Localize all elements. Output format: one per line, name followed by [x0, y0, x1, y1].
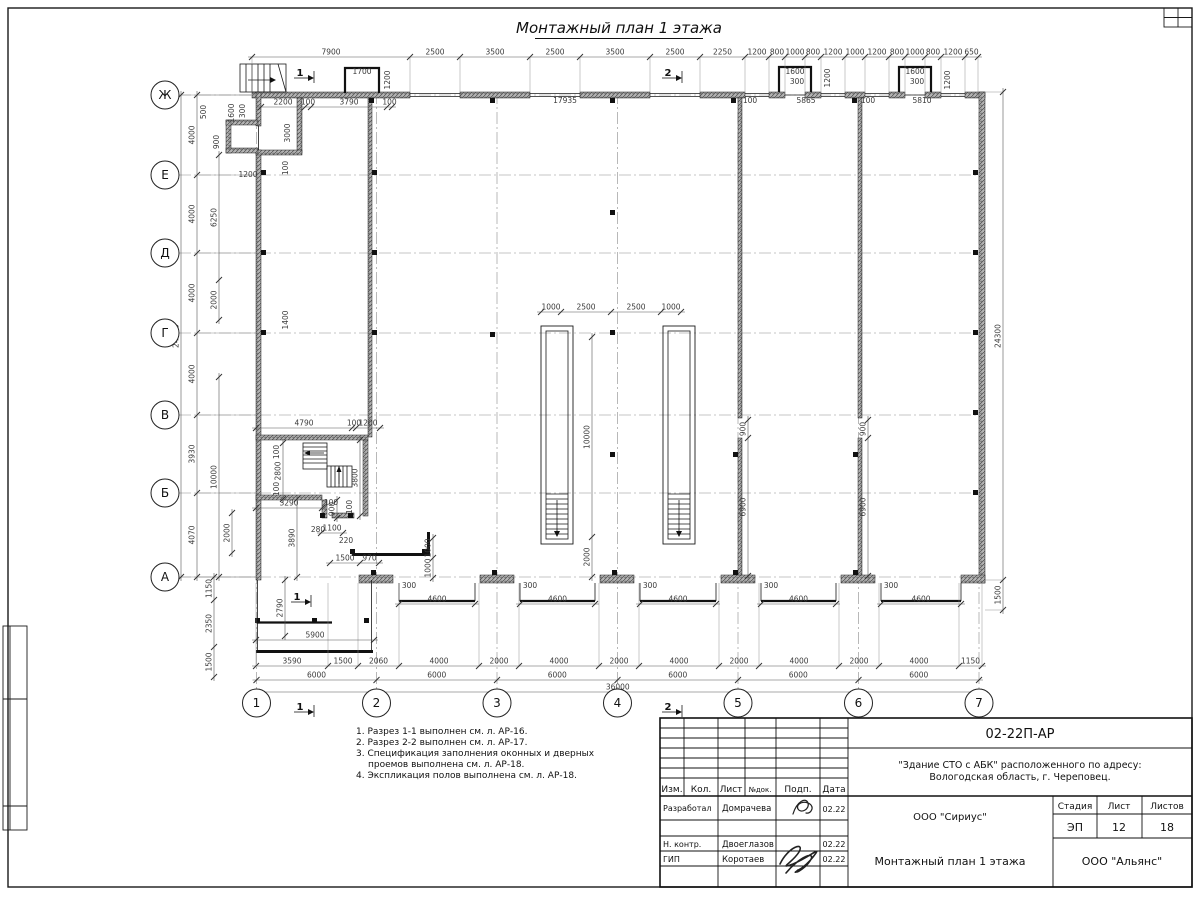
date-developer: 02.22	[823, 805, 846, 814]
dim-label: 300	[884, 581, 899, 590]
dim-label: 7900	[321, 48, 340, 57]
dim-label: 5900	[305, 631, 324, 640]
dim-label: 4000	[188, 125, 197, 144]
dim-label: 800	[806, 48, 821, 57]
dim-label: 4000	[669, 657, 688, 666]
section-mark-label: 2	[665, 68, 672, 79]
dim-label: 1600	[905, 67, 924, 76]
sheet-number: 12	[1112, 821, 1126, 834]
section-mark-label: 1	[297, 702, 304, 713]
annex-walls	[256, 532, 430, 652]
dim-label: 2000	[223, 523, 232, 542]
dim-label: 6000	[909, 671, 928, 680]
dim-label: 1200	[823, 48, 842, 57]
col-list: Лист	[720, 785, 743, 795]
dim-label: 1200	[747, 48, 766, 57]
axis-label: 3	[493, 696, 501, 710]
section-mark-label: 2	[665, 702, 672, 713]
col-ndok: №док.	[749, 786, 772, 794]
pit-right	[663, 326, 695, 544]
dim-label: 4790	[294, 419, 313, 428]
dim-label: 17935	[553, 96, 577, 105]
dim-label: 4600	[789, 595, 808, 604]
dim-label: 4000	[188, 283, 197, 302]
dim-label: 2200	[273, 98, 292, 107]
dim-label: 300	[764, 581, 779, 590]
col-kol: Кол.	[691, 785, 712, 795]
dim-label: 1200	[358, 419, 377, 428]
dim-label: 2800	[274, 461, 283, 480]
axis-label: Б	[161, 486, 169, 500]
axis-label: 1	[253, 696, 261, 710]
dim-label: 6000	[548, 671, 567, 680]
dim-label: 1200	[943, 48, 962, 57]
dim-label: 6000	[789, 671, 808, 680]
dim-label: 3000	[283, 123, 292, 142]
axis-label: Д	[160, 246, 169, 260]
dim-label: 100	[324, 498, 339, 507]
org2-name: ООО "Альянс"	[1082, 855, 1163, 868]
dim-label: 1500	[333, 657, 352, 666]
axis-label: 2	[373, 696, 381, 710]
dim-label: 1000	[424, 558, 433, 577]
notes: 1. Разрез 1-1 выполнен см. л. АР-16.2. Р…	[356, 727, 595, 781]
note-line: 4. Экспликация полов выполнена см. л. АР…	[356, 771, 577, 781]
axis-label: Г	[161, 326, 168, 340]
dim-label: 3930	[188, 444, 197, 463]
dim-label: 100	[382, 98, 397, 107]
dim-label: 2000	[489, 657, 508, 666]
dim-label: 1200	[867, 48, 886, 57]
dim-label: 3590	[282, 657, 301, 666]
sheets-total: 18	[1160, 821, 1174, 834]
dim-label: 2500	[665, 48, 684, 57]
dim-label: 4600	[427, 595, 446, 604]
col-podp: Подп.	[784, 785, 811, 795]
section-mark-label: 1	[294, 592, 301, 603]
side-stamp	[3, 626, 27, 830]
dim-label: 6250	[210, 208, 219, 227]
dim-label: 1600	[227, 103, 236, 122]
dim-label: 2250	[713, 48, 732, 57]
dim-label: 1500	[994, 585, 1003, 604]
name-developer: Домрачева	[722, 804, 771, 814]
inspection-pits	[541, 326, 695, 544]
title-block: Изм. Кол. Лист №док. Подп. Дата Разработ…	[660, 718, 1192, 887]
dim-label: 6900	[859, 497, 868, 516]
dim-label: 1000	[845, 48, 864, 57]
dim-label: 3800	[351, 468, 360, 487]
dim-label: 1500	[205, 652, 214, 671]
axis-label: Ж	[159, 88, 172, 102]
plan-canvas: 7900250035002500350025002250120080010008…	[0, 0, 1200, 900]
col-data: Дата	[822, 785, 845, 795]
dim-label: 2500	[576, 303, 595, 312]
dim-label: 3890	[288, 528, 297, 547]
dim-label: 300	[238, 104, 247, 119]
note-line: 3. Спецификация заполнения оконных и две…	[356, 749, 595, 759]
dim-label: 6000	[427, 671, 446, 680]
dim-label: 4000	[909, 657, 928, 666]
dim-label: 100	[345, 500, 354, 515]
dim-label: 300	[643, 581, 658, 590]
signature-developer	[793, 800, 812, 814]
org-name: ООО "Сириус"	[913, 812, 987, 823]
dim-label: 280	[311, 525, 326, 534]
dim-label: 4600	[548, 595, 567, 604]
dim-label: 2500	[626, 303, 645, 312]
dim-label: 1200	[943, 70, 952, 89]
dim-label: 300	[910, 77, 925, 86]
col-izm: Изм.	[661, 785, 682, 795]
dim-label: 1000	[905, 48, 924, 57]
dim-label: 2000	[583, 547, 592, 566]
dim-label: 300	[402, 581, 417, 590]
dim-label: 100	[861, 96, 876, 105]
dim-label: 2500	[545, 48, 564, 57]
axis-label: 4	[614, 696, 622, 710]
dim-label: 4000	[549, 657, 568, 666]
dim-label: 4000	[188, 204, 197, 223]
signature-gip	[780, 846, 817, 873]
note-line: 2. Разрез 2-2 выполнен см. л. АР-17.	[356, 738, 527, 748]
axis-label: 7	[975, 696, 983, 710]
dim-label: 1200	[383, 70, 392, 89]
dim-label: 10000	[210, 465, 219, 489]
entrance-stair	[240, 64, 286, 92]
dim-label: 2350	[205, 614, 214, 633]
note-line: проемов выполнена см. л. АР-18.	[368, 760, 524, 770]
role-developer: Разработал	[663, 804, 711, 813]
dim-label: 4000	[429, 657, 448, 666]
dim-label: 800	[770, 48, 785, 57]
dim-label: 100	[743, 96, 758, 105]
doc-code: 02-22П-АР	[986, 727, 1055, 742]
dim-label: 1000	[661, 303, 680, 312]
dim-label: 800	[890, 48, 905, 57]
porches	[345, 67, 931, 93]
dim-label: 100	[272, 445, 281, 460]
dim-label: 3790	[339, 98, 358, 107]
dim-label: 300	[790, 77, 805, 86]
walls	[226, 92, 985, 583]
section-marks: 12121	[291, 68, 682, 717]
object-line2: Вологодская область, г. Череповец.	[929, 772, 1110, 783]
sheet-label: Лист	[1108, 802, 1131, 812]
axis-label: В	[161, 408, 169, 422]
axis-label: А	[161, 570, 170, 584]
dim-label: 5865	[796, 96, 815, 105]
dim-label: 900	[212, 135, 221, 150]
dim-label: 900	[739, 422, 748, 437]
dim-label: 100	[281, 161, 290, 176]
dim-label: 100	[272, 482, 281, 497]
dim-label: 1000	[541, 303, 560, 312]
dim-label: 500	[199, 105, 208, 120]
dimension-labels: 1793510058651005810500900160030012003000…	[199, 67, 952, 590]
dim-label: 24300	[994, 324, 1003, 348]
dim-label: 2000	[849, 657, 868, 666]
dim-label: 6900	[739, 497, 748, 516]
dim-label: 4000	[789, 657, 808, 666]
dim-label: 4600	[668, 595, 687, 604]
dim-label: 1500	[335, 554, 354, 563]
object-line1: "Здание СТО с АБК" расположенного по адр…	[898, 760, 1141, 771]
dim-label: 6000	[668, 671, 687, 680]
dim-label: 4000	[188, 364, 197, 383]
dim-label: 1200	[823, 68, 832, 87]
dim-label: 1150	[961, 657, 980, 666]
dim-label: 900	[859, 422, 868, 437]
axis-label: 6	[855, 696, 863, 710]
pit-left	[541, 326, 573, 544]
stair-flights	[303, 443, 352, 487]
axis-label: Е	[161, 168, 169, 182]
name-gip: Коротаев	[722, 855, 764, 865]
dim-label: 1600	[785, 67, 804, 76]
role-ncontrol: Н. контр.	[663, 840, 701, 849]
date-ncontrol: 02.22	[823, 840, 846, 849]
dim-label: 2060	[369, 657, 388, 666]
dim-label: 300	[523, 581, 538, 590]
axis-label: 5	[734, 696, 742, 710]
role-gip: ГИП	[663, 855, 680, 864]
stage-label: Стадия	[1058, 802, 1093, 812]
name-ncontrol: Двоеглазов	[722, 840, 774, 850]
dim-label: 3500	[605, 48, 624, 57]
dim-label: 4600	[911, 595, 930, 604]
sheet-frame	[3, 8, 1192, 887]
dim-label: 5810	[912, 96, 931, 105]
date-gip: 02.22	[823, 855, 846, 864]
dim-label: 2500	[425, 48, 444, 57]
dim-label: 3500	[485, 48, 504, 57]
dim-label: 800	[926, 48, 941, 57]
drawing-sheet: 7900250035002500350025002250120080010008…	[0, 0, 1200, 900]
dim-label: 100	[301, 98, 316, 107]
dim-label: 2000	[210, 290, 219, 309]
dim-label: 1700	[352, 67, 371, 76]
dim-label: 4070	[188, 525, 197, 544]
dim-label: 2000	[729, 657, 748, 666]
dim-label: 2000	[609, 657, 628, 666]
note-line: 1. Разрез 1-1 выполнен см. л. АР-16.	[356, 727, 527, 737]
dim-label: 1200	[238, 170, 257, 179]
dim-label: 2790	[276, 598, 285, 617]
sheets-label: Листов	[1150, 802, 1184, 812]
dim-label: 1150	[205, 579, 214, 598]
drawing-name: Монтажный план 1 этажа	[875, 855, 1026, 868]
section-mark-label: 1	[297, 68, 304, 79]
dim-label: 220	[339, 536, 354, 545]
dim-label: 1100	[322, 524, 341, 533]
page-title: Монтажный план 1 этажа	[516, 19, 722, 37]
dim-label: 970	[362, 554, 377, 563]
dim-label: 1000	[424, 538, 433, 557]
dim-label: 1000	[785, 48, 804, 57]
dim-label: 6000	[307, 671, 326, 680]
stage-value: ЭП	[1067, 821, 1083, 834]
dim-label: 650	[964, 48, 979, 57]
columns	[255, 98, 978, 623]
dim-label: 10000	[583, 425, 592, 449]
dim-label: 1400	[281, 310, 290, 329]
